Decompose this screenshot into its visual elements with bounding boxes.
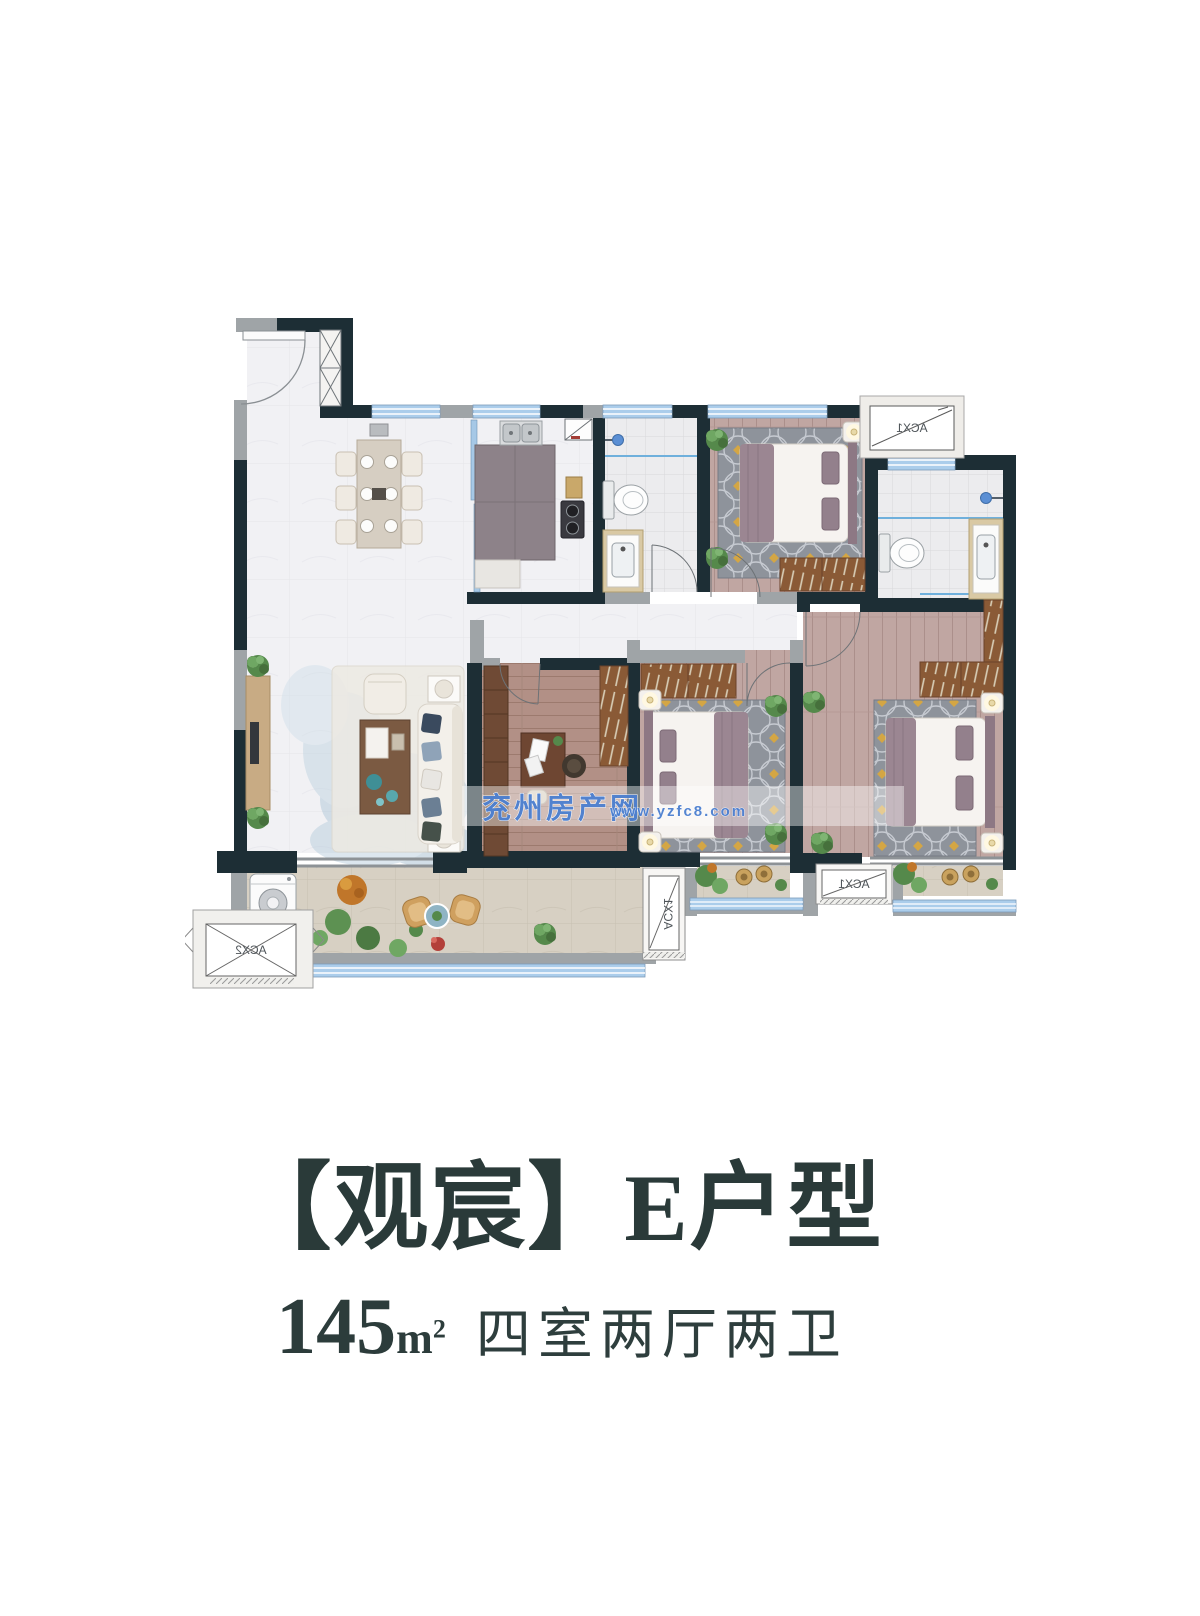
tv-console bbox=[246, 676, 270, 810]
window-bedroom3-balcony bbox=[690, 898, 803, 910]
balcony-table bbox=[425, 904, 449, 928]
entry-door-leaf bbox=[243, 331, 305, 340]
shaft-column bbox=[320, 330, 341, 406]
plant-icon bbox=[803, 691, 825, 713]
ac-platform-bottom-right: ACX1 bbox=[816, 864, 892, 904]
plant-icon bbox=[811, 832, 833, 854]
cutting-board bbox=[566, 477, 582, 498]
ac-label-bottom-right: ACX1 bbox=[838, 877, 870, 891]
bed-icon bbox=[740, 442, 857, 544]
plan-subtitle: 145m2 四室两厅两卫 bbox=[0, 1287, 1142, 1369]
page: ACX1 ACX1 ACX1 ACX2 兖州房产网 www.yzfc8.com … bbox=[0, 0, 1200, 1616]
armchair bbox=[364, 674, 406, 714]
nightstand-lamp bbox=[639, 832, 661, 852]
plant-icon bbox=[247, 655, 269, 677]
watermark: 兖州房产网 www.yzfc8.com bbox=[462, 786, 904, 826]
table-centerpiece bbox=[372, 488, 386, 500]
window-bedroom2 bbox=[708, 405, 827, 418]
window-kitchen bbox=[473, 405, 540, 418]
bedroom2 bbox=[706, 422, 865, 597]
desk bbox=[521, 733, 565, 787]
nightstand-lamp bbox=[981, 693, 1003, 713]
area-value: 145 bbox=[276, 1287, 396, 1367]
window-master-balcony bbox=[893, 900, 1016, 912]
ac-label-bottom-left: ACX2 bbox=[235, 943, 267, 957]
ac-label-top-right: ACX1 bbox=[896, 421, 928, 435]
desk-chair bbox=[562, 754, 586, 778]
wardrobe bbox=[780, 558, 865, 591]
vanity-sink bbox=[969, 519, 1003, 599]
kitchen-sink bbox=[500, 421, 542, 445]
plant-icon bbox=[247, 807, 269, 829]
watermark-site-url: www.yzfc8.com bbox=[609, 803, 747, 820]
area-unit-exponent: 2 bbox=[433, 1314, 446, 1343]
window-bath1 bbox=[603, 405, 672, 418]
plant-icon bbox=[765, 823, 787, 845]
pendant-lamp-icon bbox=[370, 424, 388, 436]
stove bbox=[561, 501, 584, 538]
nightstand-lamp bbox=[639, 690, 661, 710]
coffee-table bbox=[360, 720, 410, 814]
plant-icon bbox=[765, 695, 787, 717]
range-hood bbox=[565, 419, 592, 440]
ac-platform-mid-bottom: ACX1 bbox=[643, 868, 685, 960]
plan-title: 【观宸】E户型 bbox=[0, 1156, 1140, 1261]
nightstand-lamp bbox=[981, 833, 1003, 853]
plan-caption: 【观宸】E户型 145m2 四室两厅两卫 bbox=[0, 1156, 1160, 1369]
window-dining bbox=[372, 405, 440, 418]
plant-icon bbox=[534, 923, 556, 945]
area-unit-base: m bbox=[396, 1314, 433, 1363]
side-table bbox=[428, 676, 460, 702]
floor-plan: ACX1 ACX1 ACX1 ACX2 兖州房产网 www.yzfc8.com bbox=[185, 310, 1020, 1000]
layout-text: 四室两厅两卫 bbox=[476, 1289, 848, 1369]
ac-platform-top-right: ACX1 bbox=[860, 396, 964, 458]
wardrobe bbox=[600, 666, 628, 766]
bookcase bbox=[484, 666, 508, 856]
vanity-sink bbox=[603, 530, 643, 592]
ac-platform-bottom-left: ACX2 bbox=[185, 910, 324, 988]
plant-icon bbox=[706, 429, 728, 451]
area-unit: m2 bbox=[396, 1313, 446, 1364]
window-balcony bbox=[300, 964, 645, 977]
ac-label-mid-bottom: ACX1 bbox=[661, 898, 675, 930]
kitchen-mat bbox=[475, 560, 520, 588]
sofa bbox=[418, 704, 462, 844]
